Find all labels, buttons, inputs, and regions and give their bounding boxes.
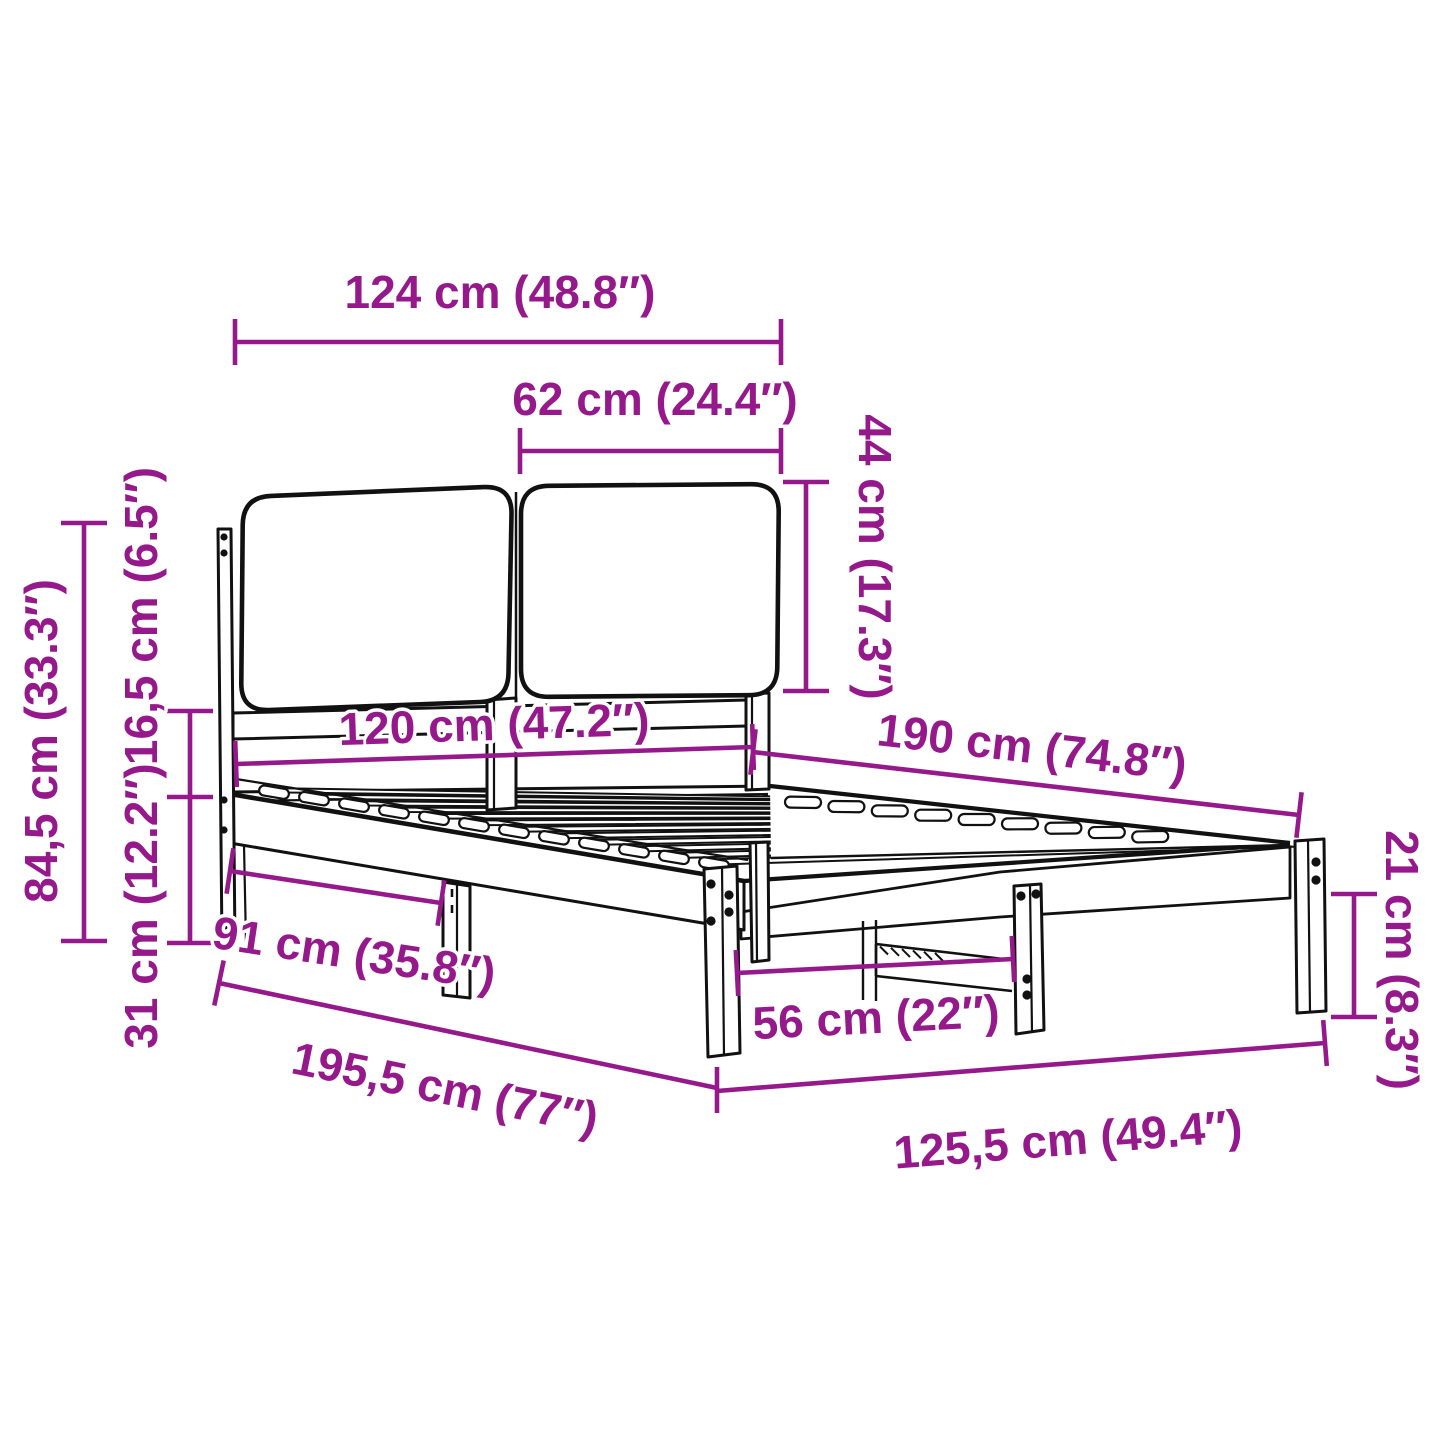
svg-text:124 cm (48.8″): 124 cm (48.8″) [345, 266, 656, 318]
svg-text:31 cm (12.2″): 31 cm (12.2″) [115, 763, 167, 1048]
svg-text:16,5 cm (6.5″): 16,5 cm (6.5″) [115, 467, 167, 765]
svg-text:62 cm (24.4″): 62 cm (24.4″) [512, 373, 797, 425]
svg-text:21 cm (8.3″): 21 cm (8.3″) [1376, 830, 1428, 1090]
svg-text:120 cm (47.2″): 120 cm (47.2″) [338, 693, 651, 755]
svg-text:44 cm (17.3″): 44 cm (17.3″) [849, 414, 901, 699]
svg-text:84,5 cm (33.3″): 84,5 cm (33.3″) [15, 579, 67, 903]
